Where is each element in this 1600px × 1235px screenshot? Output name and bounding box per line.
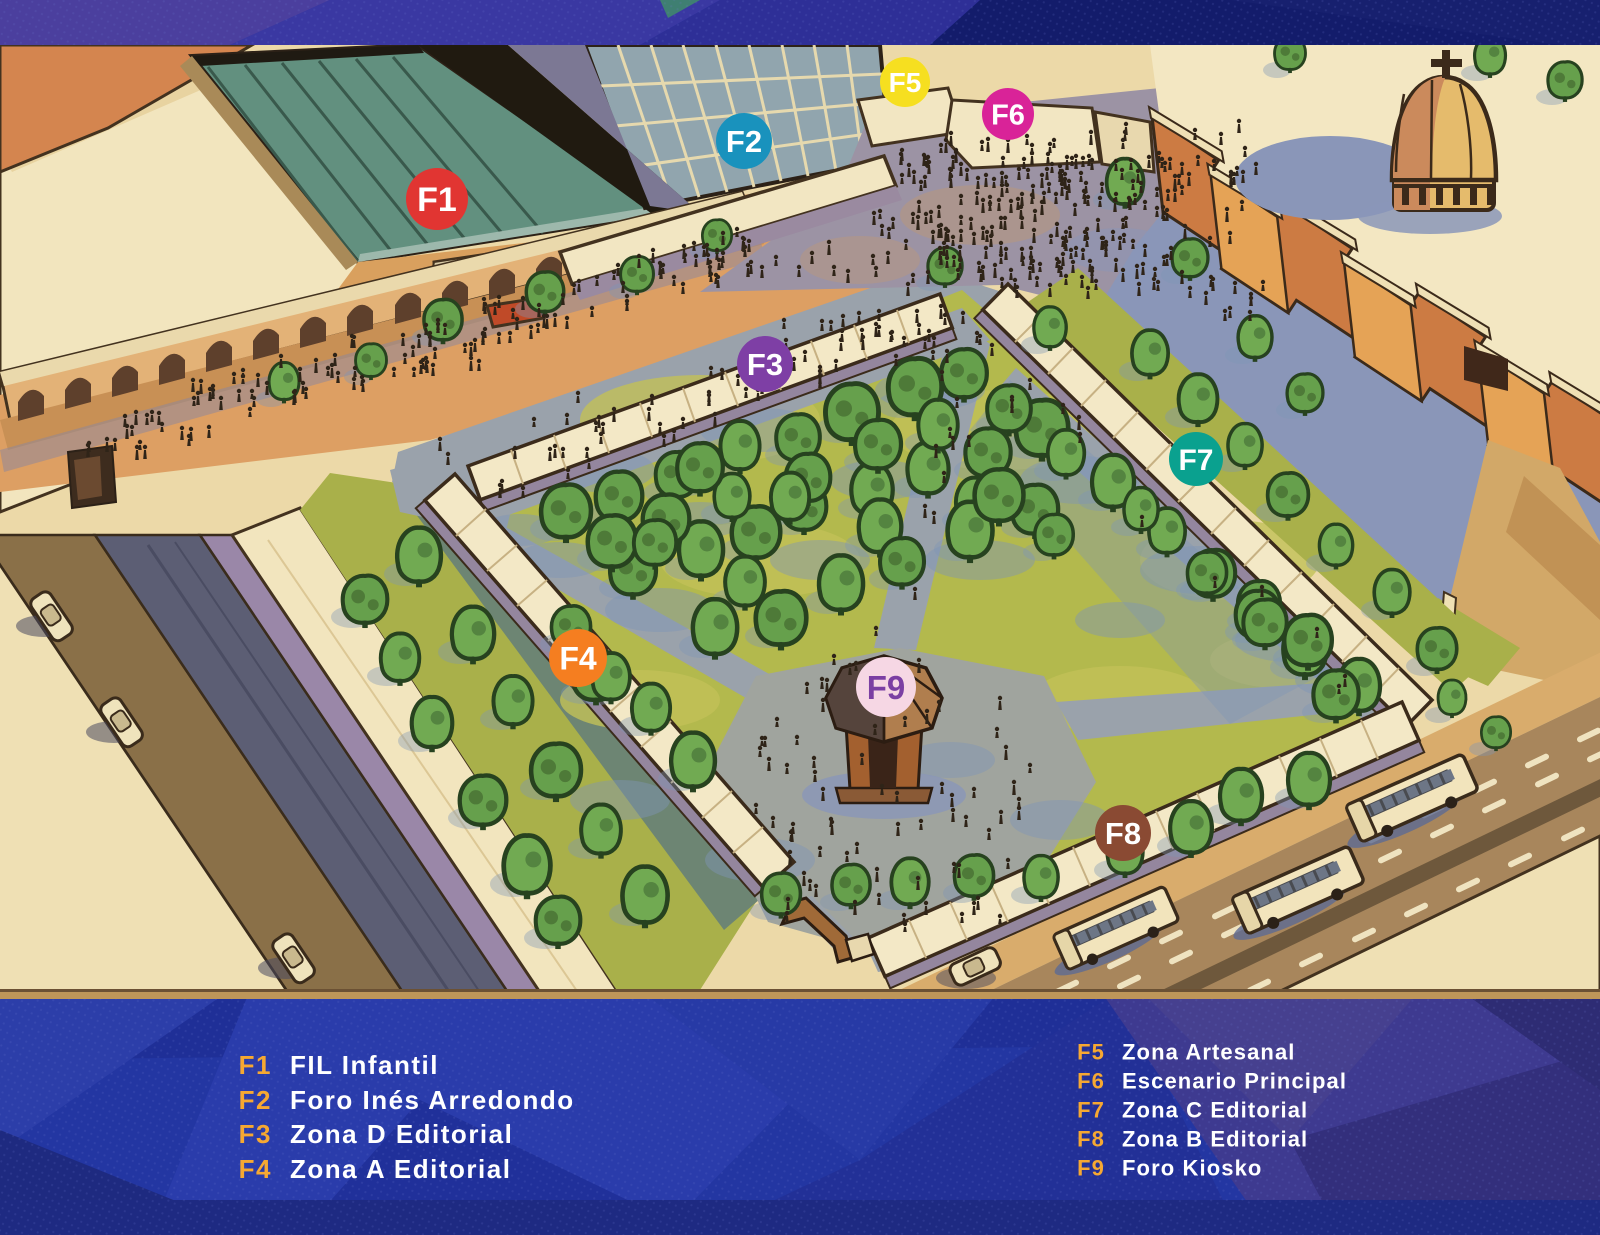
svg-text:F9: F9 (867, 669, 906, 706)
svg-text:F5: F5 (889, 67, 922, 98)
svg-text:F8: F8 (1077, 1126, 1105, 1151)
svg-text:F1: F1 (417, 181, 457, 219)
svg-text:Zona A Editorial: Zona A Editorial (290, 1154, 511, 1184)
svg-text:F2: F2 (726, 124, 762, 159)
svg-text:F3: F3 (747, 347, 783, 382)
svg-text:Zona D Editorial: Zona D Editorial (290, 1119, 513, 1149)
svg-text:F7: F7 (1178, 444, 1213, 477)
svg-text:F4: F4 (559, 641, 597, 677)
svg-text:FIL Infantil: FIL Infantil (290, 1050, 439, 1080)
svg-text:Zona Artesanal: Zona Artesanal (1122, 1039, 1296, 1064)
svg-text:Foro Kiosko: Foro Kiosko (1122, 1155, 1262, 1180)
svg-text:F6: F6 (991, 99, 1025, 131)
svg-text:Zona B Editorial: Zona B Editorial (1122, 1126, 1308, 1151)
svg-text:F9: F9 (1077, 1155, 1105, 1180)
svg-text:F7: F7 (1077, 1097, 1105, 1122)
svg-text:Zona C Editorial: Zona C Editorial (1122, 1097, 1308, 1122)
svg-text:Foro Inés Arredondo: Foro Inés Arredondo (290, 1085, 575, 1115)
svg-text:F3: F3 (239, 1119, 272, 1149)
svg-text:F5: F5 (1077, 1039, 1105, 1064)
svg-text:Escenario Principal: Escenario Principal (1122, 1068, 1347, 1093)
svg-text:F8: F8 (1105, 816, 1141, 851)
svg-text:F2: F2 (239, 1085, 272, 1115)
svg-text:F6: F6 (1077, 1068, 1105, 1093)
svg-text:F1: F1 (239, 1050, 272, 1080)
svg-text:F4: F4 (239, 1154, 272, 1184)
